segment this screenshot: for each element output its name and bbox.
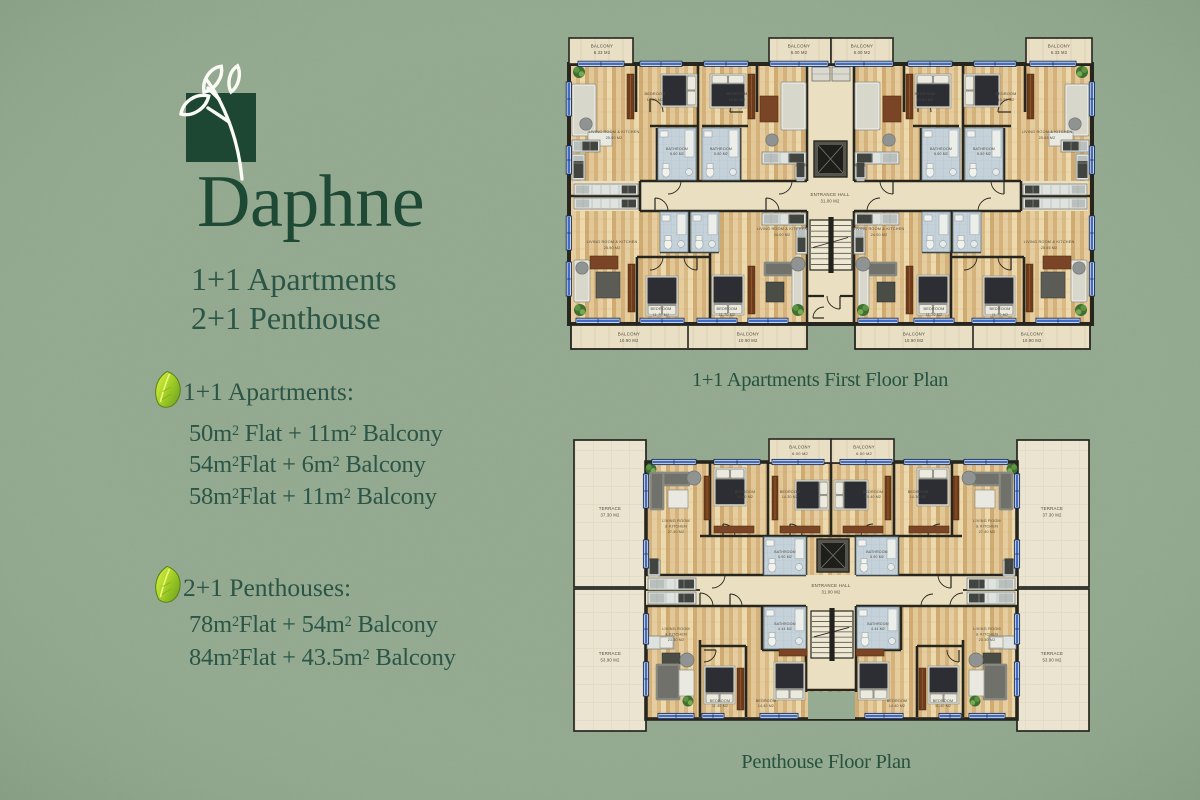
- svg-text:ENTRANCE HALL: ENTRANCE HALL: [811, 192, 850, 197]
- svg-text:BALCONY: BALCONY: [591, 44, 613, 49]
- svg-text:TERRACE: TERRACE: [1041, 506, 1063, 511]
- svg-text:6.00 M2: 6.00 M2: [854, 50, 871, 55]
- svg-text:13.50 M2: 13.50 M2: [729, 98, 746, 102]
- svg-text:11.70 M2: 11.70 M2: [992, 313, 1008, 317]
- svg-text:13.50 M2: 13.50 M2: [917, 98, 934, 102]
- svg-text:1+1 Apartments First Floor Pla: 1+1 Apartments First Floor Plan: [692, 369, 948, 391]
- svg-text:BALCONY: BALCONY: [903, 332, 925, 337]
- svg-text:37.30 M2: 37.30 M2: [1042, 513, 1062, 518]
- svg-text:25.65 M2: 25.65 M2: [1039, 136, 1056, 140]
- svg-text:5.90 M2: 5.90 M2: [778, 555, 792, 559]
- svg-text:BEDROOM: BEDROOM: [914, 92, 935, 96]
- svg-text:53.90 M2: 53.90 M2: [600, 658, 620, 663]
- svg-text:LIVING ROOM & KITCHEN: LIVING ROOM & KITCHEN: [854, 227, 905, 231]
- svg-text:BEDROOM: BEDROOM: [908, 490, 928, 494]
- svg-text:6.33 M2: 6.33 M2: [594, 50, 611, 55]
- svg-text:6.60 M2: 6.60 M2: [670, 152, 684, 156]
- svg-text:BALCONY: BALCONY: [618, 332, 640, 337]
- svg-text:23.30 M2: 23.30 M2: [668, 638, 685, 642]
- svg-text:31.00 M2: 31.00 M2: [821, 590, 841, 595]
- svg-text:Daphne: Daphne: [197, 161, 424, 243]
- svg-text:& KITCHEN: & KITCHEN: [976, 633, 998, 637]
- svg-text:6.60 M2: 6.60 M2: [934, 152, 948, 156]
- svg-text:14.30 M2: 14.30 M2: [782, 495, 798, 499]
- svg-text:LIVING ROOM: LIVING ROOM: [973, 627, 1001, 631]
- svg-text:2+1 Penthouses:: 2+1 Penthouses:: [183, 573, 351, 602]
- svg-text:BEDROOM: BEDROOM: [780, 490, 800, 494]
- svg-text:10.90 M2: 10.90 M2: [738, 338, 758, 343]
- svg-text:1+1 Apartments: 1+1 Apartments: [191, 261, 397, 297]
- svg-text:BATHROOM: BATHROOM: [930, 147, 952, 151]
- svg-text:84m2Flat + 43.5m2 Balcony: 84m2Flat + 43.5m2 Balcony: [189, 644, 457, 671]
- svg-text:14.40 M2: 14.40 M2: [889, 704, 905, 708]
- svg-text:LIVING ROOM & KITCHEN: LIVING ROOM & KITCHEN: [589, 130, 640, 134]
- svg-text:24.00 M2: 24.00 M2: [871, 233, 888, 237]
- svg-text:6.00 M2: 6.00 M2: [856, 451, 872, 456]
- svg-text:BEDROOM: BEDROOM: [923, 307, 944, 311]
- svg-text:25.90 M2: 25.90 M2: [606, 136, 623, 140]
- svg-text:BALCONY: BALCONY: [789, 445, 810, 450]
- svg-text:BEDROOM: BEDROOM: [933, 699, 953, 703]
- svg-text:11.40 M2: 11.40 M2: [935, 704, 951, 708]
- svg-text:10.90 M2: 10.90 M2: [619, 338, 639, 343]
- svg-text:1+1 Apartments:: 1+1 Apartments:: [183, 377, 354, 406]
- svg-text:50m2 Flat + 11m2 Balcony: 50m2 Flat + 11m2 Balcony: [189, 420, 444, 447]
- svg-text:BALCONY: BALCONY: [737, 332, 759, 337]
- svg-text:BATHROOM: BATHROOM: [866, 550, 888, 554]
- svg-text:BEDROOM: BEDROOM: [995, 92, 1016, 96]
- svg-text:BEDROOM: BEDROOM: [710, 699, 730, 703]
- svg-text:4.44 M2: 4.44 M2: [778, 627, 792, 631]
- svg-text:TERRACE: TERRACE: [599, 651, 621, 656]
- svg-text:BATHROOM: BATHROOM: [867, 622, 889, 626]
- svg-text:LIVING ROOM: LIVING ROOM: [662, 627, 690, 631]
- svg-text:6.60 M2: 6.60 M2: [977, 152, 991, 156]
- svg-text:BATHROOM: BATHROOM: [666, 147, 688, 151]
- svg-text:BEDROOM: BEDROOM: [863, 490, 883, 494]
- svg-text:BEDROOM: BEDROOM: [989, 307, 1010, 311]
- svg-text:6.00 M2: 6.00 M2: [792, 451, 808, 456]
- svg-text:11.70 M2: 11.70 M2: [926, 313, 942, 317]
- svg-text:BATHROOM: BATHROOM: [710, 147, 732, 151]
- svg-text:37.30 M2: 37.30 M2: [600, 513, 620, 518]
- svg-text:14.40 M2: 14.40 M2: [758, 704, 774, 708]
- svg-text:LIVING ROOM & KITCHEN: LIVING ROOM & KITCHEN: [1024, 240, 1075, 244]
- svg-text:24.00 M2: 24.00 M2: [774, 233, 791, 237]
- svg-text:10.90 M2: 10.90 M2: [904, 338, 924, 343]
- svg-text:14.30 M2: 14.30 M2: [910, 495, 926, 499]
- svg-text:BEDROOM: BEDROOM: [716, 307, 737, 311]
- svg-text:LIVING ROOM: LIVING ROOM: [662, 519, 690, 523]
- svg-text:BALCONY: BALCONY: [851, 44, 873, 49]
- svg-text:6.00 M2: 6.00 M2: [791, 50, 808, 55]
- svg-text:LIVING ROOM: LIVING ROOM: [973, 519, 1001, 523]
- svg-text:27.40 M2: 27.40 M2: [668, 530, 685, 534]
- svg-text:BATHROOM: BATHROOM: [973, 147, 995, 151]
- svg-text:BATHROOM: BATHROOM: [774, 622, 796, 626]
- svg-text:BEDROOM: BEDROOM: [735, 490, 755, 494]
- svg-text:BALCONY: BALCONY: [788, 44, 810, 49]
- svg-text:78m2Flat + 54m2 Balcony: 78m2Flat + 54m2 Balcony: [189, 611, 439, 638]
- svg-text:58m2Flat + 11m2 Balcony: 58m2Flat + 11m2 Balcony: [189, 483, 438, 510]
- svg-text:2+1 Penthouse: 2+1 Penthouse: [191, 300, 381, 336]
- svg-text:15.40 M2: 15.40 M2: [865, 495, 881, 499]
- svg-text:ENTRANCE HALL: ENTRANCE HALL: [812, 583, 851, 588]
- svg-text:15.40 M2: 15.40 M2: [737, 495, 753, 499]
- svg-text:BALCONY: BALCONY: [1021, 332, 1043, 337]
- svg-text:Penthouse Floor Plan: Penthouse Floor Plan: [741, 751, 910, 773]
- svg-text:BEDROOM: BEDROOM: [887, 699, 907, 703]
- svg-text:6.60 M2: 6.60 M2: [714, 152, 728, 156]
- svg-text:BATHROOM: BATHROOM: [774, 550, 796, 554]
- svg-text:31.00 M2: 31.00 M2: [820, 199, 840, 204]
- svg-text:LIVING ROOM & KITCHEN: LIVING ROOM & KITCHEN: [1022, 130, 1073, 134]
- svg-text:13.50 M2: 13.50 M2: [998, 98, 1015, 102]
- svg-text:4.44 M2: 4.44 M2: [871, 627, 885, 631]
- svg-text:11.70 M2: 11.70 M2: [653, 313, 669, 317]
- svg-text:TERRACE: TERRACE: [599, 506, 621, 511]
- svg-text:BEDROOM: BEDROOM: [726, 92, 747, 96]
- svg-text:10.90 M2: 10.90 M2: [1022, 338, 1042, 343]
- svg-text:LIVING ROOM & KITCHEN: LIVING ROOM & KITCHEN: [587, 240, 638, 244]
- svg-text:BEDROOM: BEDROOM: [756, 699, 776, 703]
- svg-text:25.90 M2: 25.90 M2: [604, 246, 621, 250]
- svg-text:5.90 M2: 5.90 M2: [870, 555, 884, 559]
- svg-text:BEDROOM: BEDROOM: [650, 307, 671, 311]
- svg-text:BALCONY: BALCONY: [853, 445, 874, 450]
- svg-text:& KITCHEN: & KITCHEN: [665, 633, 687, 637]
- svg-text:11.70 M2: 11.70 M2: [719, 313, 735, 317]
- svg-text:TERRACE: TERRACE: [1041, 651, 1063, 656]
- svg-text:6.33 M2: 6.33 M2: [1051, 50, 1068, 55]
- svg-text:& KITCHEN: & KITCHEN: [665, 525, 687, 529]
- svg-text:54m2Flat + 6m2 Balcony: 54m2Flat + 6m2 Balcony: [189, 451, 427, 478]
- svg-text:23.30 M2: 23.30 M2: [979, 638, 996, 642]
- svg-text:13.50 M2: 13.50 M2: [647, 98, 664, 102]
- svg-text:11.40 M2: 11.40 M2: [712, 704, 728, 708]
- svg-text:25.65 M2: 25.65 M2: [1041, 246, 1058, 250]
- svg-text:& KITCHEN: & KITCHEN: [976, 525, 998, 529]
- svg-text:LIVING ROOM & KITCHEN: LIVING ROOM & KITCHEN: [757, 227, 808, 231]
- svg-text:27.40 M2: 27.40 M2: [979, 530, 996, 534]
- svg-text:53.90 M2: 53.90 M2: [1042, 658, 1062, 663]
- svg-text:BEDROOM: BEDROOM: [644, 92, 665, 96]
- svg-text:BALCONY: BALCONY: [1048, 44, 1070, 49]
